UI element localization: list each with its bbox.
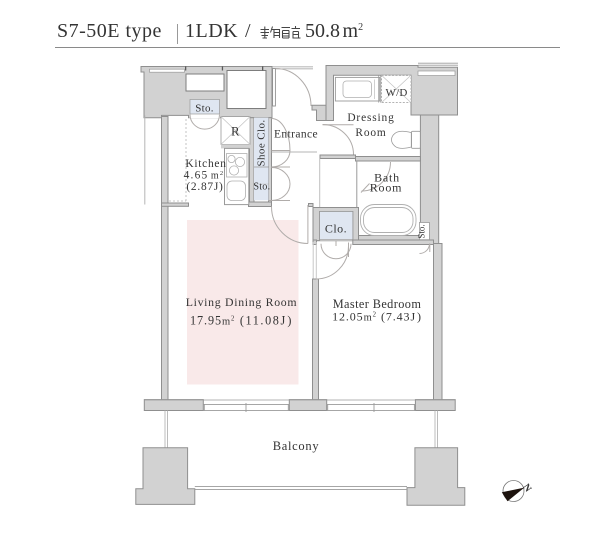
svg-text:17.95m2(11.08J): 17.95m2(11.08J) [190, 313, 293, 327]
svg-text:Living Dining Room: Living Dining Room [186, 295, 298, 309]
svg-text:Room: Room [370, 181, 403, 195]
svg-text:/: / [245, 20, 251, 42]
svg-text:W/D: W/D [386, 87, 408, 99]
svg-text:R: R [231, 124, 240, 138]
svg-text:50.8m2: 50.8m2 [305, 20, 363, 42]
svg-text:1LDK: 1LDK [185, 20, 238, 42]
svg-text:Sto.: Sto. [253, 182, 270, 193]
svg-text:Clo.: Clo. [325, 222, 347, 236]
svg-text:Entrance: Entrance [274, 128, 318, 140]
svg-text:Kitchen: Kitchen [185, 158, 226, 170]
svg-text:Dressing: Dressing [347, 112, 394, 124]
svg-text:Room: Room [355, 127, 386, 139]
svg-text:(2.87J): (2.87J) [186, 181, 223, 193]
svg-text:4.65m2: 4.65m2 [184, 169, 225, 181]
svg-text:Sto.: Sto. [417, 224, 427, 238]
svg-text:S7-50E type: S7-50E type [57, 20, 162, 42]
svg-text:Shoe Clo.: Shoe Clo. [256, 120, 268, 167]
svg-text:Balcony: Balcony [273, 439, 320, 453]
svg-text:Sto.: Sto. [195, 102, 214, 114]
